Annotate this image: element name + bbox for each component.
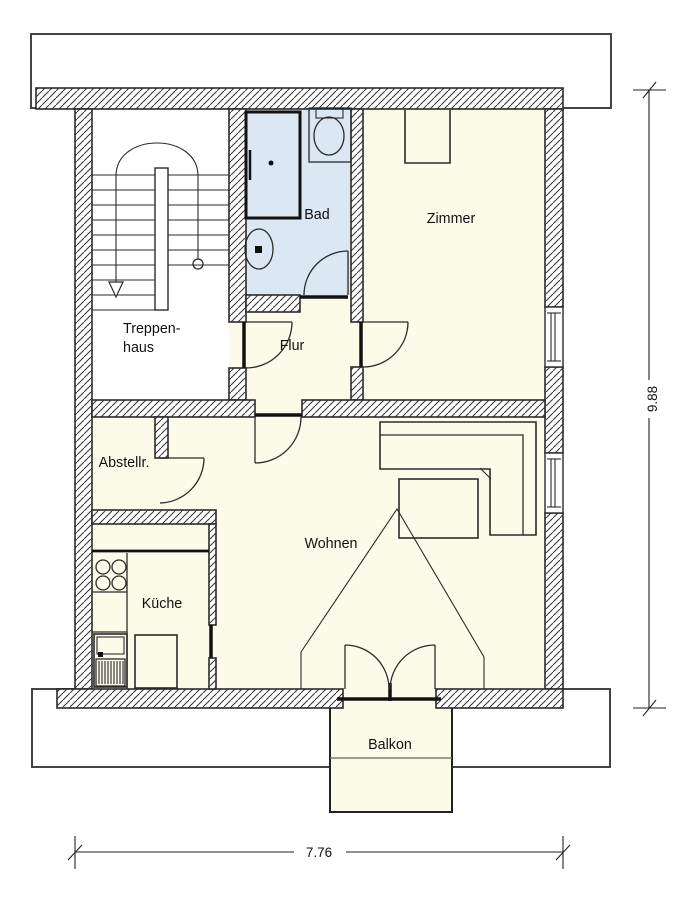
room-label-treppenhaus-line2: haus xyxy=(123,340,154,356)
room-label-treppenhaus-line1: Treppen- xyxy=(123,321,181,337)
room-label-wohnen: Wohnen xyxy=(305,536,358,552)
floorplan-drawing: Treppen- haus Bad Zimmer Flur Abstellr. … xyxy=(0,0,687,899)
wall-bath-room-lower xyxy=(351,367,363,400)
room-label-flur: Flur xyxy=(280,338,305,354)
wall-bath-room-upper xyxy=(351,109,363,322)
room-label-kueche: Küche xyxy=(142,596,183,612)
wall-right-middle xyxy=(545,367,563,453)
wall-main-horizontal-left xyxy=(92,400,255,417)
room-label-zimmer: Zimmer xyxy=(427,211,476,227)
room-label-balkon: Balkon xyxy=(368,737,412,753)
wall-stairwell-upper xyxy=(229,109,246,322)
room-label-bad: Bad xyxy=(304,207,329,223)
wall-main-horizontal-right xyxy=(302,400,545,417)
window-wohnen xyxy=(545,453,563,513)
wall-kitchen-top xyxy=(92,510,216,524)
dimension-height-label: 9.88 xyxy=(645,386,660,412)
wall-bottom-left xyxy=(57,689,343,708)
floorplan-canvas: Treppen- haus Bad Zimmer Flur Abstellr. … xyxy=(0,0,687,899)
balcony xyxy=(330,701,452,812)
wall-bottom-right xyxy=(436,689,563,708)
window-zimmer xyxy=(545,307,563,367)
wall-top xyxy=(36,88,563,109)
wall-right-upper xyxy=(545,109,563,307)
wall-bath-bottom xyxy=(246,295,300,312)
room-label-abstellraum: Abstellr. xyxy=(99,455,150,471)
wall-stairwell-lower xyxy=(229,368,246,400)
wall-kitchen-right-lower xyxy=(209,658,216,689)
dimension-width-label: 7.76 xyxy=(306,845,332,860)
wall-left xyxy=(75,109,92,689)
wall-kitchen-right-upper xyxy=(209,524,216,625)
wall-right-lower xyxy=(545,513,563,689)
wall-storage xyxy=(155,417,168,458)
stair-spine-wall xyxy=(155,168,168,310)
